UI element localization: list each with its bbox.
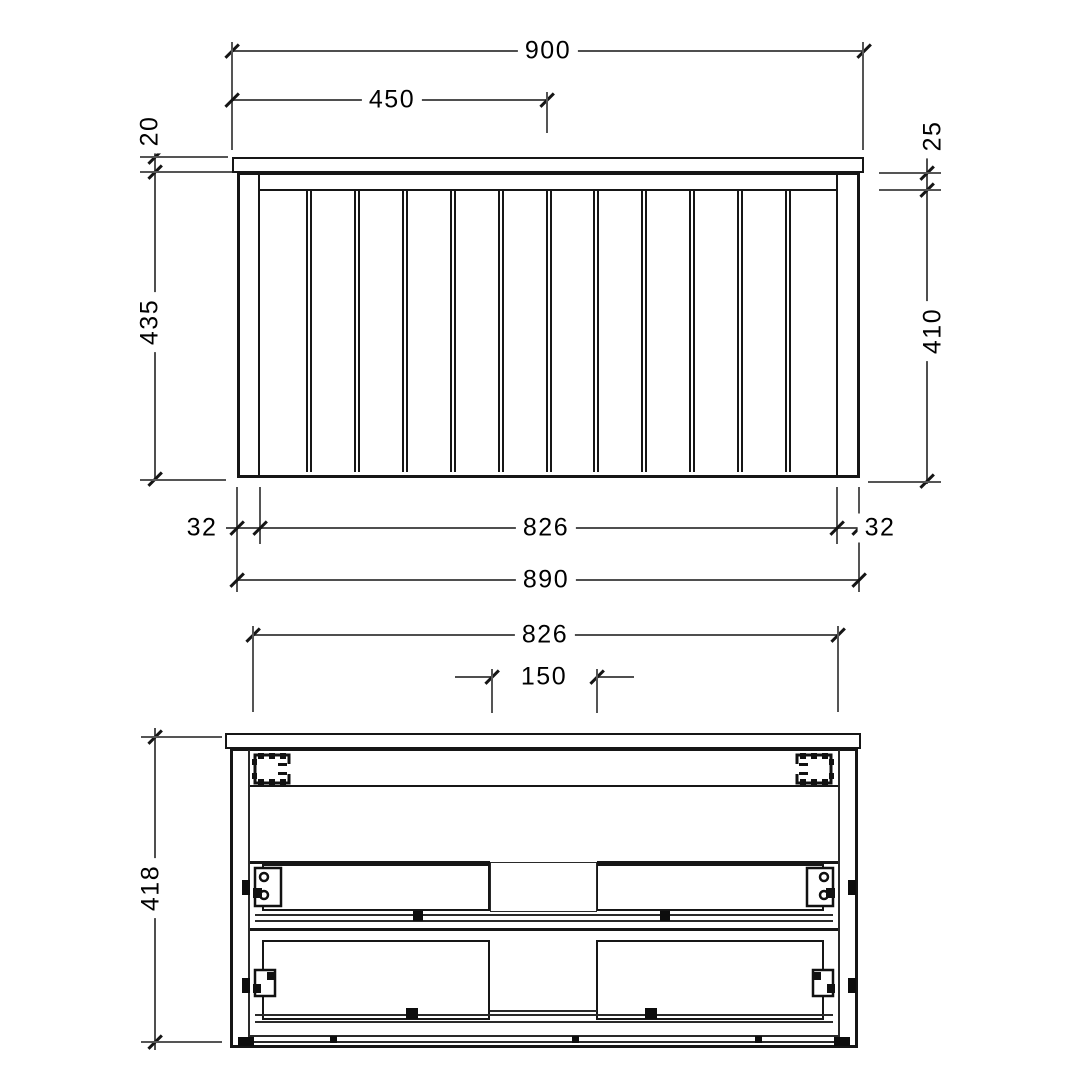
- slat-divider: [450, 191, 456, 472]
- bottom-dowel: [330, 1036, 337, 1043]
- ext-line: [868, 481, 941, 483]
- dim-label-410: 410: [919, 301, 948, 361]
- drawer-slide-bracket-icon: [811, 968, 835, 998]
- ext-line: [252, 626, 254, 712]
- plan-worktop: [225, 733, 861, 749]
- technical-drawing-canvas: 900 450 20 435 25 410: [0, 0, 1080, 1080]
- wall-clip: [242, 880, 250, 895]
- upper-drawer-back-right: [596, 864, 824, 911]
- mounting-bracket-icon: [794, 752, 834, 786]
- ext-line: [879, 172, 941, 174]
- dim-label-826: 826: [516, 514, 576, 543]
- ext-line: [546, 92, 548, 133]
- dim-label-826-plan: 826: [515, 621, 575, 650]
- dim-line-150-left: [455, 676, 492, 678]
- slide-rail-line: [255, 920, 833, 922]
- siphon-gap-back-line: [490, 1010, 597, 1012]
- slat-divider: [354, 191, 360, 472]
- slide-clip: [413, 911, 423, 921]
- slat-divider: [641, 191, 647, 472]
- bottom-dowel: [572, 1036, 579, 1043]
- front-left-stile-line: [258, 174, 260, 476]
- upper-drawer-back-left: [262, 864, 490, 911]
- dim-line-150-right: [597, 676, 634, 678]
- bottom-strip-line: [250, 1035, 838, 1037]
- wall-clip: [848, 880, 856, 895]
- slat-divider: [402, 191, 408, 472]
- drawer-slide-bracket-icon: [253, 866, 283, 908]
- drawer-slide-bracket-icon: [253, 968, 277, 998]
- hanging-rail-line: [250, 785, 838, 787]
- upper-band-bottom-line: [250, 928, 838, 931]
- bottom-corner-fitting: [834, 1037, 850, 1046]
- dim-label-900: 900: [518, 37, 578, 66]
- slide-rail-line: [255, 1014, 833, 1016]
- dim-label-25: 25: [919, 114, 948, 159]
- dim-label-32-left: 32: [180, 514, 225, 543]
- slat-divider: [306, 191, 312, 472]
- ext-line: [596, 669, 598, 713]
- wall-clip: [242, 978, 250, 993]
- dim-label-32-right: 32: [858, 514, 903, 543]
- slat-divider: [593, 191, 599, 472]
- dim-label-418: 418: [137, 858, 166, 918]
- siphon-gap-upper: [490, 862, 597, 912]
- ext-line: [491, 669, 493, 713]
- slat-divider: [498, 191, 504, 472]
- slide-clip: [645, 1008, 657, 1019]
- slat-divider: [737, 191, 743, 472]
- slat-divider: [546, 191, 552, 472]
- ext-line: [259, 487, 261, 544]
- slat-divider: [785, 191, 791, 472]
- bottom-corner-fitting: [238, 1037, 254, 1046]
- ext-line: [879, 189, 941, 191]
- ext-line: [141, 1041, 222, 1043]
- lower-drawer-box-left: [262, 940, 490, 1020]
- ext-line: [837, 626, 839, 712]
- ext-line: [140, 171, 232, 173]
- slide-rail-line: [255, 914, 833, 916]
- dim-label-890: 890: [516, 566, 576, 595]
- dim-label-20: 20: [136, 109, 165, 154]
- bottom-dowel: [755, 1036, 762, 1043]
- bottom-strip-line: [250, 1041, 838, 1043]
- front-right-stile-line: [836, 174, 838, 476]
- mounting-bracket-icon: [252, 752, 292, 786]
- ext-line: [862, 42, 864, 150]
- dim-label-435: 435: [136, 292, 165, 352]
- drawer-slide-bracket-icon: [805, 866, 835, 908]
- plan-right-inner-wall: [838, 750, 840, 1046]
- slide-clip: [406, 1008, 418, 1019]
- slide-rail-line: [255, 1021, 833, 1023]
- slat-divider: [689, 191, 695, 472]
- plan-left-inner-wall: [248, 750, 250, 1046]
- slide-clip: [660, 911, 670, 921]
- ext-line: [140, 156, 228, 158]
- ext-line: [836, 487, 838, 544]
- wall-clip: [848, 978, 856, 993]
- ext-line: [140, 479, 226, 481]
- dim-label-450: 450: [362, 86, 422, 115]
- ext-line: [141, 736, 222, 738]
- front-worktop: [232, 157, 864, 173]
- lower-drawer-box-right: [596, 940, 824, 1020]
- dim-label-150: 150: [514, 663, 574, 692]
